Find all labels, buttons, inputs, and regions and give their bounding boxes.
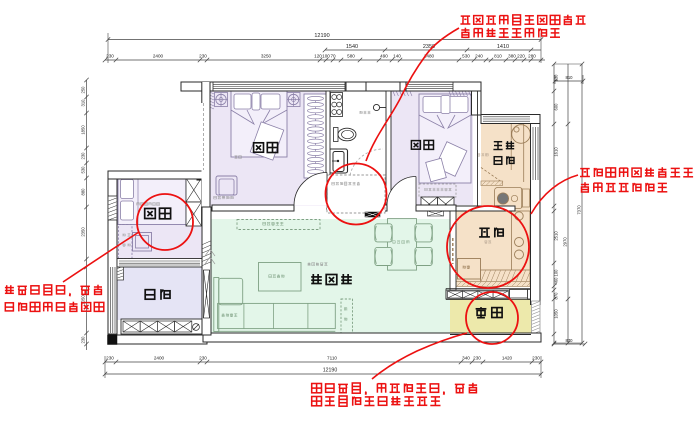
svg-text:810: 810 — [494, 54, 502, 59]
svg-text:240: 240 — [475, 54, 483, 59]
svg-text:140: 140 — [393, 54, 401, 59]
svg-text:460: 460 — [554, 277, 559, 285]
svg-text:230: 230 — [106, 356, 114, 361]
svg-text:530: 530 — [81, 166, 86, 174]
svg-text:810: 810 — [566, 75, 574, 80]
svg-text:870: 870 — [566, 338, 574, 343]
svg-text:1540: 1540 — [346, 44, 358, 50]
svg-text:2510: 2510 — [554, 231, 559, 241]
svg-text:870: 870 — [554, 292, 559, 300]
svg-text:100: 100 — [554, 269, 559, 277]
svg-text:130: 130 — [554, 74, 559, 82]
svg-text:3250: 3250 — [261, 54, 272, 59]
svg-text:380: 380 — [508, 54, 516, 59]
svg-text:580: 580 — [347, 54, 355, 59]
svg-text:1850: 1850 — [81, 125, 86, 135]
svg-text:1610: 1610 — [554, 147, 559, 157]
svg-text:230: 230 — [81, 336, 86, 344]
svg-text:230: 230 — [532, 356, 540, 361]
svg-text:280: 280 — [528, 54, 536, 59]
svg-text:70: 70 — [330, 54, 336, 59]
svg-text:2970: 2970 — [563, 237, 568, 247]
svg-text:2400: 2400 — [153, 54, 164, 59]
svg-text:600: 600 — [554, 103, 559, 111]
svg-text:530: 530 — [462, 54, 470, 59]
svg-text:1420: 1420 — [502, 356, 513, 361]
svg-text:120: 120 — [314, 54, 322, 59]
svg-text:2400: 2400 — [154, 356, 165, 361]
svg-text:7110: 7110 — [327, 356, 337, 361]
svg-text:490: 490 — [380, 54, 388, 59]
svg-text:230: 230 — [106, 54, 114, 59]
svg-text:310: 310 — [81, 99, 86, 107]
svg-text:880: 880 — [81, 188, 86, 196]
svg-text:100: 100 — [322, 54, 330, 59]
svg-text:340: 340 — [462, 356, 470, 361]
svg-text:12190: 12190 — [314, 33, 329, 39]
svg-text:1050: 1050 — [554, 309, 559, 319]
svg-text:2350: 2350 — [81, 227, 86, 237]
svg-text:12190: 12190 — [323, 368, 338, 374]
svg-text:250: 250 — [81, 86, 86, 94]
svg-text:230: 230 — [199, 54, 207, 59]
svg-text:7370: 7370 — [577, 205, 582, 215]
svg-text:230: 230 — [473, 356, 481, 361]
svg-text:220: 220 — [517, 54, 525, 59]
svg-text:230: 230 — [81, 152, 86, 160]
svg-text:1410: 1410 — [497, 44, 509, 50]
svg-text:230: 230 — [199, 356, 207, 361]
